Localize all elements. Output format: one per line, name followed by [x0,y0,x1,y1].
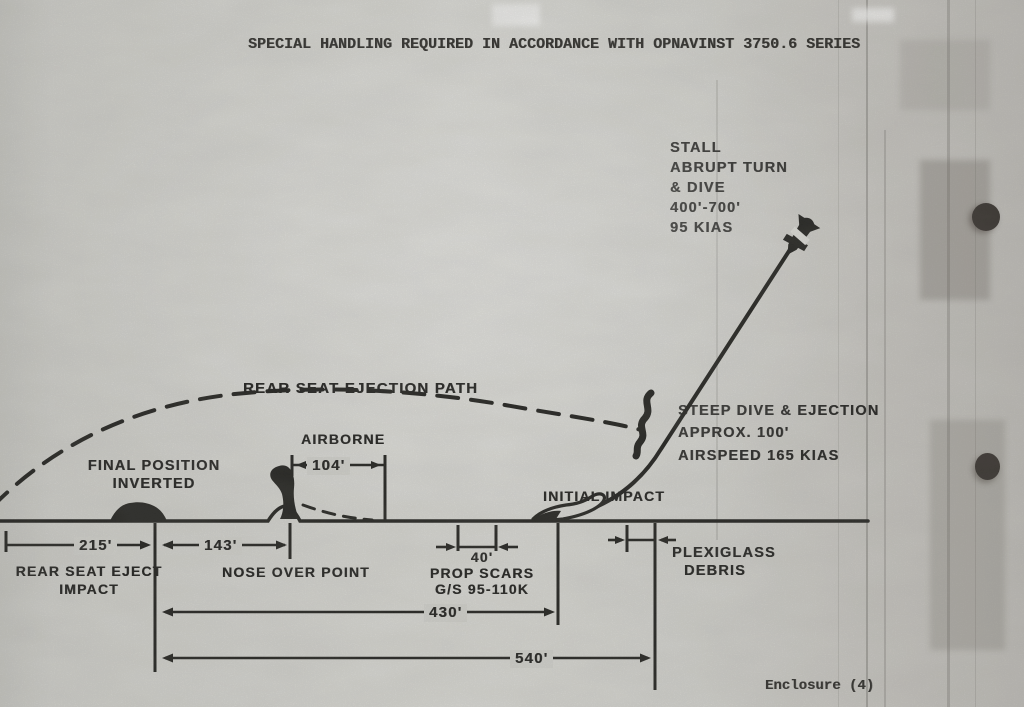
total-distance: 540' [510,650,553,668]
airborne-label: AIRBORNE [301,430,385,448]
dive-path-line [557,248,791,518]
nose-over-distance: 143' [199,537,242,555]
initial-impact-label: INITIAL IMPACT [543,487,665,505]
ejection-path-label: REAR SEAT EJECTION PATH [243,380,478,398]
airborne-distance: 104' [307,457,350,475]
final-position-inverted-silhouette [110,502,167,521]
enclosure-footer: Enclosure (4) [765,677,874,695]
aircraft-stall-silhouette [777,212,822,262]
ejection-seat-figure-silhouette [636,393,651,456]
rear-seat-eject-distance: 215' [74,537,117,555]
classification-header: SPECIAL HANDLING REQUIRED IN ACCORDANCE … [248,36,860,54]
ground-run-dashed-line [303,505,372,520]
scanned-accident-diagram-page: SPECIAL HANDLING REQUIRED IN ACCORDANCE … [0,0,1024,707]
initial-impact-distance: 430' [424,604,467,622]
crash-diagram-linework [0,0,1024,707]
nose-over-label: NOSE OVER POINT [222,563,370,581]
